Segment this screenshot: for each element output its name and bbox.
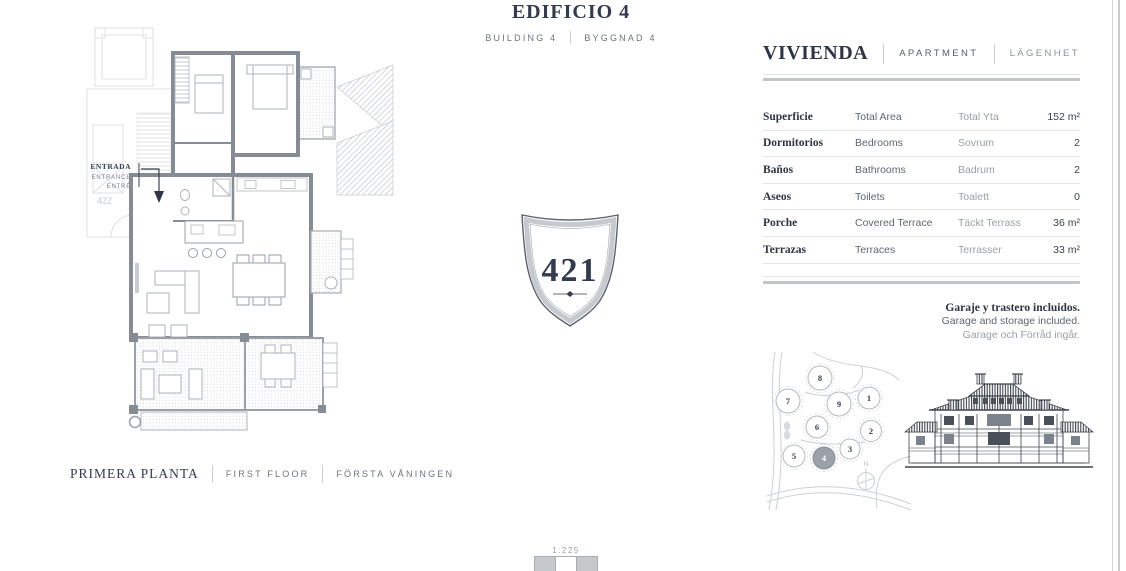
table-row: Superficie Total Area Total Yta 152 m² (763, 104, 1080, 131)
svg-text:9: 9 (837, 399, 841, 409)
row-label-es: Baños (763, 164, 855, 176)
footer-rule-thin (763, 276, 1080, 277)
unit-title-es: VIVIENDA (763, 42, 868, 65)
garage-note: Garaje y trastero incluidos. Garage and … (763, 302, 1080, 342)
scale-bar-segment (556, 557, 577, 571)
header-rule-thick (763, 78, 1080, 81)
svg-text:6: 6 (815, 422, 819, 432)
site-plan: 8 7 9 1 6 2 5 3 4 N (765, 350, 913, 512)
building-7: 7 (774, 387, 803, 416)
side-terrace (311, 231, 353, 293)
row-value: 33 m² (1053, 244, 1080, 256)
garage-note-es: Garaje y trastero incluidos. (763, 302, 1080, 315)
roof-hatch-areas (337, 65, 393, 195)
row-label-es: Porche (763, 217, 855, 229)
row-value: 2 (1074, 164, 1080, 176)
svg-text:3: 3 (848, 444, 852, 454)
upper-terrace (298, 53, 335, 155)
page-title: EDIFICIO 4 (421, 1, 721, 24)
table-row: Porche Covered Terrace Täckt Terrass 36 … (763, 210, 1080, 237)
row-label-es: Aseos (763, 191, 855, 203)
unit-title-en: APARTMENT (899, 48, 978, 59)
row-label-sv: Badrum (958, 164, 1074, 176)
subtitle-sv: BYGGNAD 4 (584, 33, 656, 43)
subtitle-en: BUILDING 4 (485, 33, 557, 43)
floor-label-es: PRIMERA PLANTA (70, 466, 199, 482)
floor-caption: PRIMERA PLANTA FIRST FLOOR FÖRSTA VÅNING… (70, 465, 454, 483)
building-2: 2 (858, 418, 884, 444)
neighbor-unit-number: 422 (97, 196, 112, 207)
row-label-en: Covered Terrace (855, 217, 958, 229)
table-row: Dormitorios Bedrooms Sovrum 2 (763, 131, 1080, 158)
svg-text:2: 2 (869, 426, 873, 436)
covered-porch (245, 338, 337, 410)
svg-text:8: 8 (818, 373, 822, 383)
building-5: 5 (781, 443, 808, 470)
row-label-sv: Terrasser (958, 244, 1053, 256)
divider (883, 44, 884, 64)
page-edge-line (1112, 0, 1113, 571)
header-rule-thin (763, 74, 1080, 75)
divider (322, 465, 323, 483)
document-header: EDIFICIO 4 BUILDING 4 BYGGNAD 4 (421, 1, 721, 44)
entrance-label-en: ENTRANCE (92, 175, 131, 181)
row-label-sv: Toalett (958, 191, 1074, 203)
site-pool (784, 422, 790, 440)
row-label-sv: Total Yta (958, 111, 1047, 123)
garage-note-sv: Garage och Förråd ingår. (763, 329, 1080, 342)
row-value: 152 m² (1047, 111, 1080, 123)
row-value: 36 m² (1053, 217, 1080, 229)
row-label-en: Toilets (855, 191, 958, 203)
row-value: 0 (1074, 191, 1080, 203)
row-label-en: Bathrooms (855, 164, 958, 176)
entrance-label-sv: ENTRÉ (107, 183, 131, 190)
scale-bar-segment (577, 557, 597, 571)
compass-icon: N (857, 461, 875, 490)
garage-note-en: Garage and storage included. (763, 315, 1080, 328)
unit-spec-table: Superficie Total Area Total Yta 152 m² D… (763, 104, 1080, 264)
floor-label-sv: FÖRSTA VÅNINGEN (336, 469, 454, 479)
compass-north-label: N (864, 461, 869, 468)
svg-text:5: 5 (792, 451, 796, 461)
scale-label: 1:225 (552, 546, 580, 555)
brochure-page: EDIFICIO 4 BUILDING 4 BYGGNAD 4 (0, 0, 1126, 571)
row-label-es: Dormitorios (763, 137, 855, 149)
divider (570, 31, 571, 44)
floor-plan-drawing: 422 (85, 25, 395, 445)
building-1: 1 (856, 385, 883, 412)
entrance-label-es: ENTRADA (90, 162, 131, 171)
table-row: Terrazas Terraces Terrasser 33 m² (763, 237, 1080, 264)
floor-label-en: FIRST FLOOR (226, 469, 310, 479)
building-9: 9 (825, 390, 854, 419)
page-edge-line (1118, 0, 1120, 571)
row-label-en: Total Area (855, 111, 958, 123)
building-3: 3 (838, 437, 863, 462)
site-buildings: 8 7 9 1 6 2 5 3 4 (774, 364, 885, 472)
unit-title-sv: LÄGENHET (1010, 48, 1080, 59)
site-roads (767, 352, 911, 510)
row-label-es: Superficie (763, 111, 855, 123)
scale-bar (534, 556, 598, 571)
divider (994, 44, 995, 64)
building-6: 6 (804, 414, 831, 441)
svg-text:1: 1 (867, 393, 871, 403)
row-label-en: Bedrooms (855, 137, 958, 149)
scale-bar-segment (535, 557, 556, 571)
table-row: Baños Bathrooms Badrum 2 (763, 157, 1080, 184)
row-label-sv: Täckt Terrass (958, 217, 1053, 229)
building-elevation (903, 370, 1095, 472)
row-value: 2 (1074, 137, 1080, 149)
divider (212, 465, 213, 483)
row-label-en: Terraces (855, 244, 958, 256)
building-8: 8 (806, 364, 835, 393)
row-label-sv: Sovrum (958, 137, 1074, 149)
footer-rule-thick (763, 281, 1080, 284)
table-row: Aseos Toilets Toalett 0 (763, 184, 1080, 211)
building-4-highlighted: 4 (811, 445, 838, 472)
unit-number: 421 (542, 252, 599, 289)
unit-badge: 421 (517, 208, 623, 332)
unit-panel-header: VIVIENDA APARTMENT LÄGENHET (763, 42, 1080, 65)
row-label-es: Terrazas (763, 244, 855, 256)
